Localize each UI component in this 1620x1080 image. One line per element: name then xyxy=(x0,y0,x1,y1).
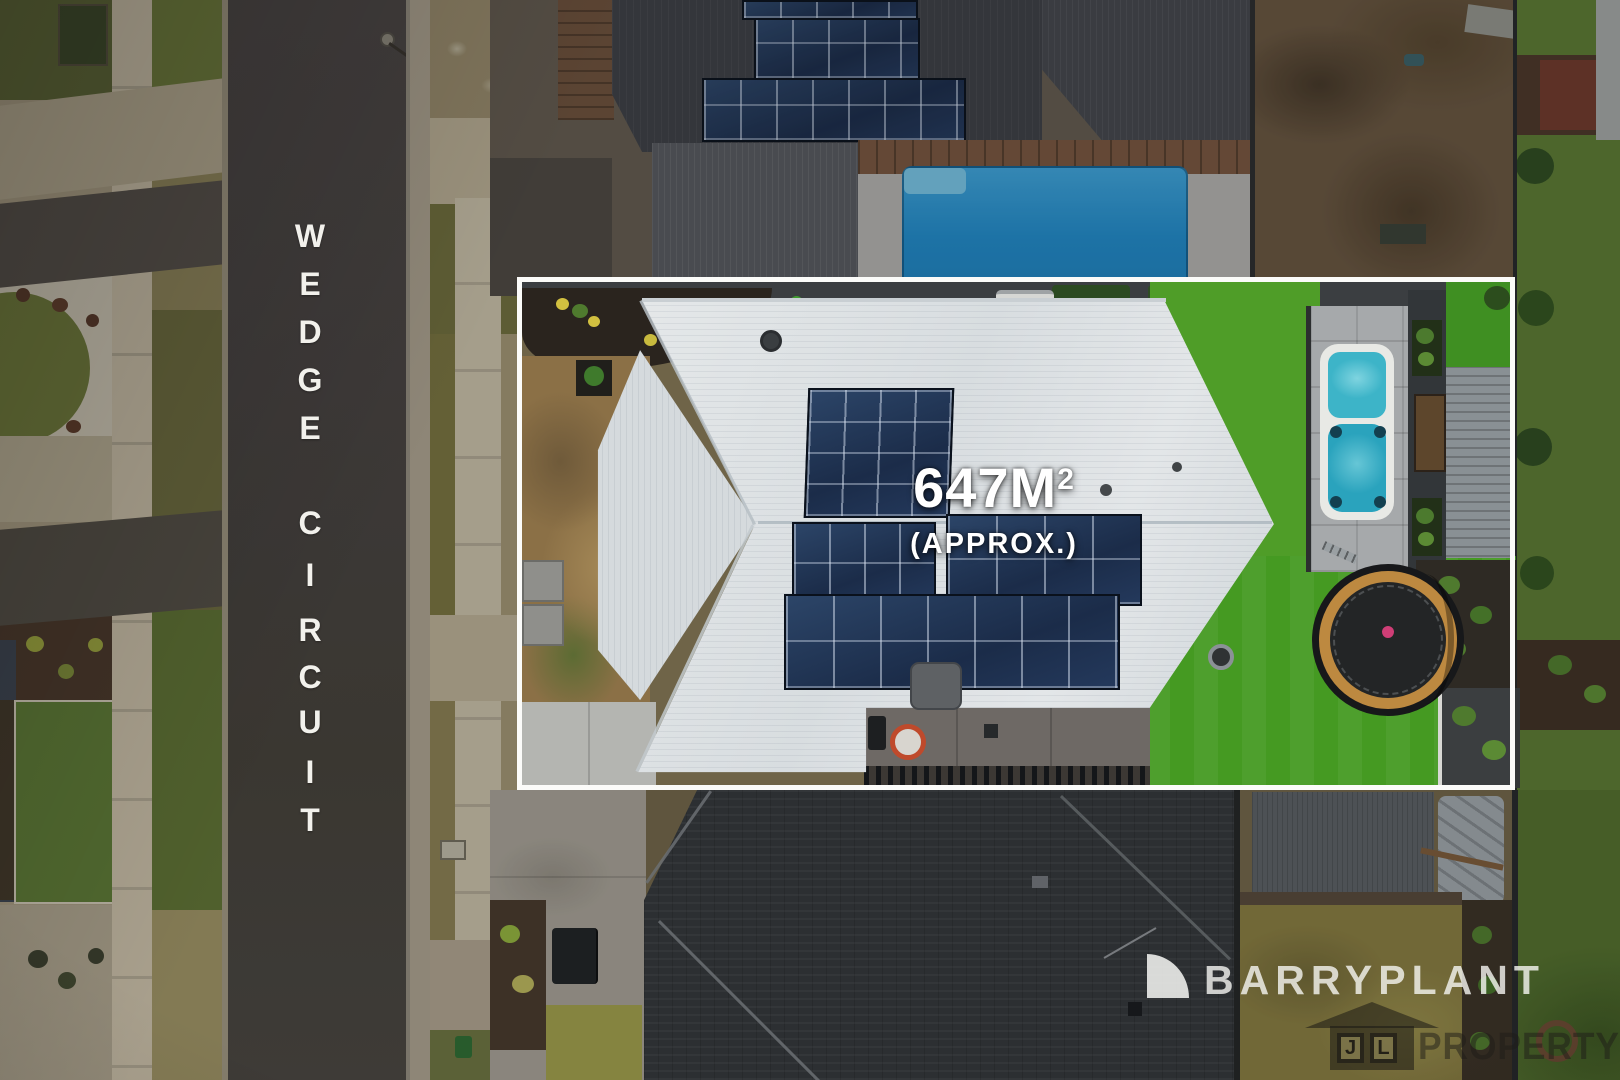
street-letter: W xyxy=(284,220,336,252)
vignette xyxy=(0,0,1620,1080)
jl-initial-right: L xyxy=(1377,1037,1389,1059)
street-letter: C xyxy=(284,661,336,693)
street-letter: I xyxy=(284,756,336,788)
area-value: 647M xyxy=(913,456,1057,519)
street-letter: U xyxy=(284,706,336,738)
area-superscript: 2 xyxy=(1057,463,1075,496)
street-letter: R xyxy=(284,614,336,646)
jl-letter-box: L xyxy=(1370,1033,1397,1063)
street-letter: I xyxy=(284,559,336,591)
street-letter: D xyxy=(284,316,336,348)
street-letter: T xyxy=(284,804,336,836)
area-qualifier: (APPROX.) xyxy=(864,530,1124,559)
house-roof xyxy=(1305,1002,1439,1028)
street-letter: G xyxy=(284,364,336,396)
area-label: 647M2 xyxy=(864,460,1124,516)
agency-watermark: BARRYPLANT xyxy=(1147,952,1527,1002)
street-letter: C xyxy=(284,507,336,539)
street-name: W E D G E C I R C U I T xyxy=(284,0,336,1080)
area-overlay: 647M2 (APPROX.) xyxy=(864,460,1124,559)
street-letter: E xyxy=(284,412,336,444)
quarter-circle-icon xyxy=(1147,954,1189,998)
jl-initial-left: J xyxy=(1345,1037,1356,1059)
property-wordmark: PROPERTY xyxy=(1418,1026,1620,1069)
agency-name: BARRYPLANT xyxy=(1204,957,1545,1004)
street-letter: E xyxy=(284,268,336,300)
media-watermark: J L PROPERTY xyxy=(1305,1000,1620,1080)
jl-letter-box: J xyxy=(1337,1033,1364,1063)
aerial-property-photo: W E D G E C I R C U I T 647M2 (APPROX.) … xyxy=(0,0,1620,1080)
